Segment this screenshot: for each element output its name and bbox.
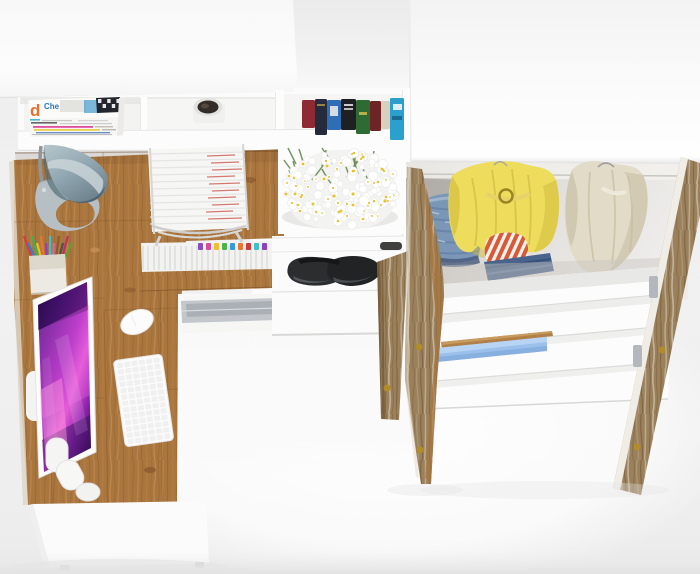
svg-text:Che: Che (44, 102, 60, 111)
svg-text:d: d (30, 101, 40, 120)
